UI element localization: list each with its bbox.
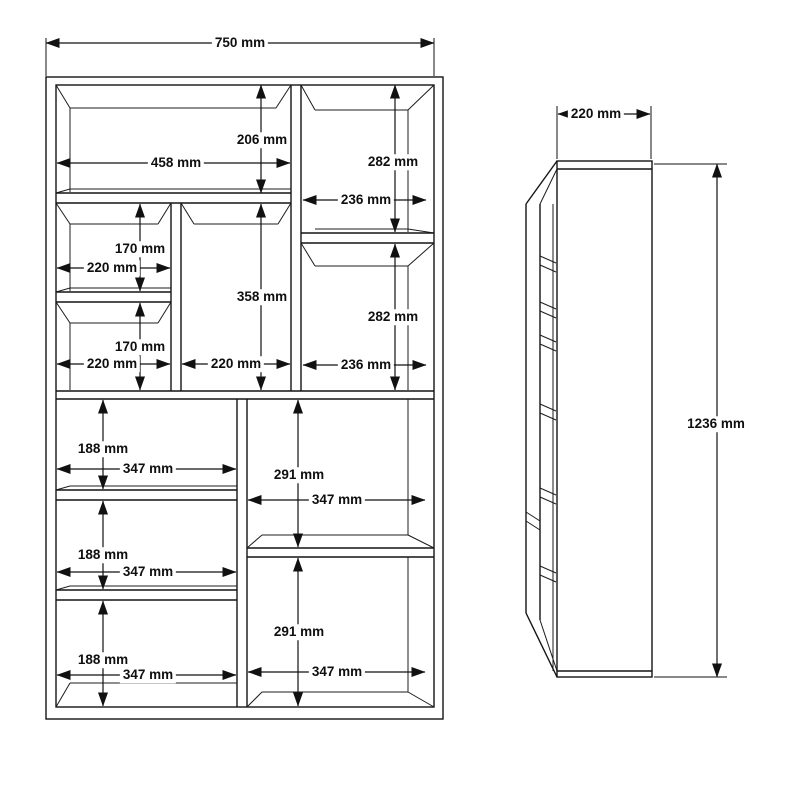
dim-lower-left-cell2-width: 347 mm — [120, 564, 176, 580]
dim-lower-right-cell1-height: 291 mm — [271, 467, 327, 483]
dim-middle-cell-height: 358 mm — [234, 289, 290, 305]
dim-left-cell1-width: 220 mm — [84, 260, 140, 276]
dim-lower-left-cell3-width: 347 mm — [120, 667, 176, 683]
bookshelf-dimension-drawing: 750 mm 206 mm 458 mm 282 mm 236 mm 170 m… — [0, 0, 800, 800]
dim-lower-left-cell1-width: 347 mm — [120, 461, 176, 477]
dim-side-depth: 220 mm — [568, 106, 624, 122]
dim-left-cell1-height: 170 mm — [112, 241, 168, 257]
dim-lower-right-cell2-height: 291 mm — [271, 624, 327, 640]
dim-top-right-upper-cell-height: 282 mm — [365, 154, 421, 170]
depth-perspective-lines — [56, 85, 434, 707]
side-panel — [553, 161, 652, 677]
side-back-panel — [526, 161, 557, 677]
dim-lower-right-cell1-width: 347 mm — [309, 492, 365, 508]
dim-lower-left-cell1-height: 188 mm — [75, 441, 131, 457]
dim-side-overall-height: 1236 mm — [684, 416, 748, 432]
cabinet-dividers — [171, 85, 301, 707]
dim-middle-cell-width: 220 mm — [208, 356, 264, 372]
dim-top-left-cell-width: 458 mm — [148, 155, 204, 171]
dim-lower-right-cell2-width: 347 mm — [309, 664, 365, 680]
dim-top-left-cell-height: 206 mm — [234, 132, 290, 148]
dim-top-right-lower-cell-width: 236 mm — [338, 357, 394, 373]
side-shelf-edges — [526, 256, 556, 582]
dim-left-cell2-width: 220 mm — [84, 356, 140, 372]
dimension-arrow-lines — [46, 43, 717, 706]
cabinet-outer-frame — [46, 77, 443, 719]
dim-front-overall-width: 750 mm — [212, 35, 268, 51]
dim-lower-left-cell3-height: 188 mm — [75, 652, 131, 668]
front-view — [46, 77, 443, 719]
side-view — [526, 161, 652, 677]
dim-top-right-upper-cell-width: 236 mm — [338, 192, 394, 208]
dim-lower-left-cell2-height: 188 mm — [75, 547, 131, 563]
dim-top-right-lower-cell-height: 282 mm — [365, 309, 421, 325]
dim-left-cell2-height: 170 mm — [112, 339, 168, 355]
